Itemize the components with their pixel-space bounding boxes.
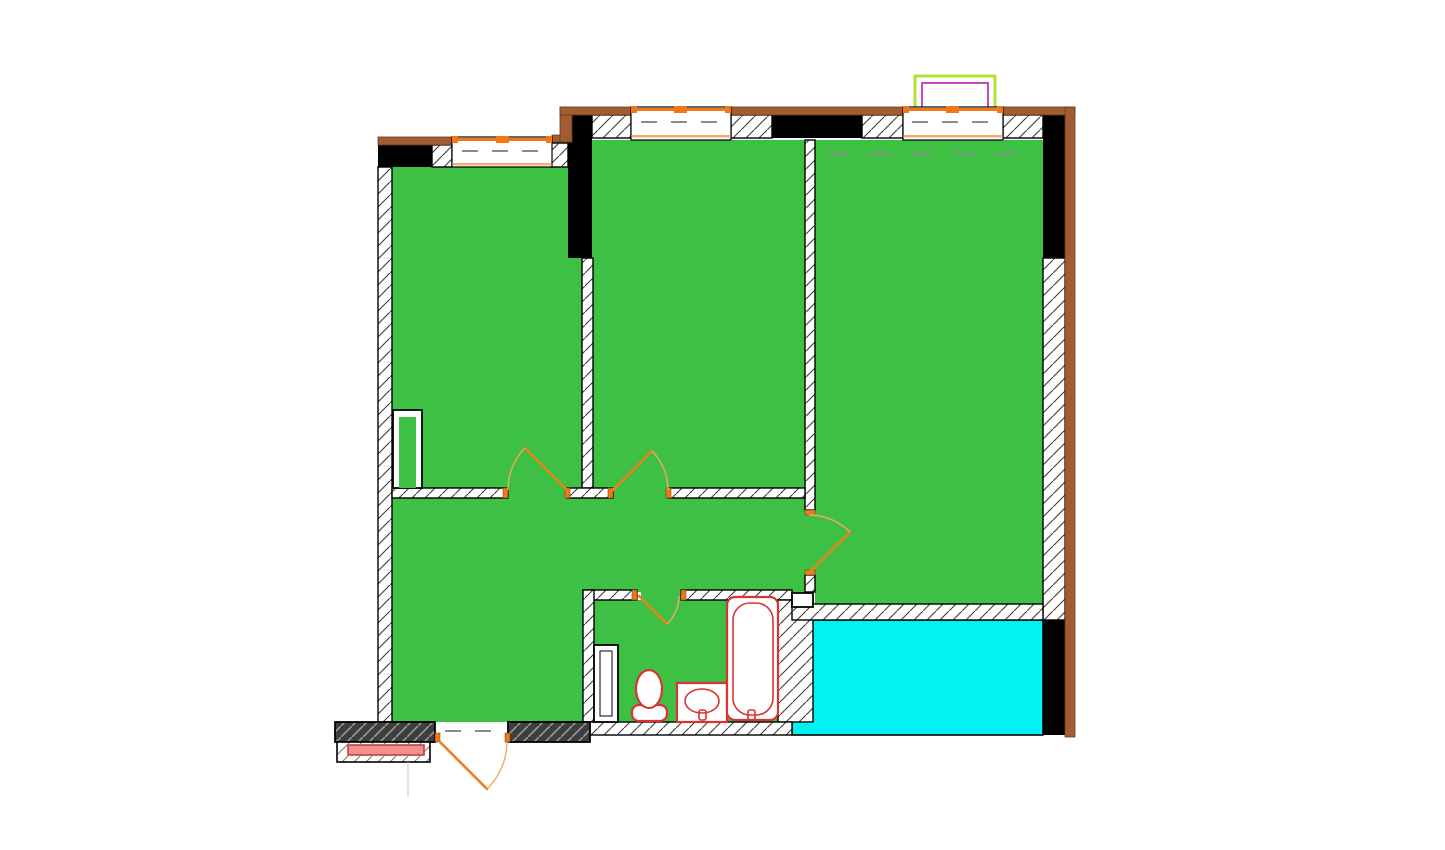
wall-top-piece-2 [550, 143, 568, 167]
window-1-mark-left [452, 136, 458, 143]
entry [335, 722, 590, 797]
wall-mid-horizontal-1 [392, 488, 508, 498]
door-4-jamb-left [632, 590, 637, 600]
window-3-inner-line [903, 135, 1003, 138]
window-box-inner [922, 83, 988, 109]
duct-bathroom-core [600, 651, 612, 716]
window-3-mark-right [997, 106, 1003, 113]
bathroom-wall-bottom [583, 722, 792, 735]
wall-top-piece-1 [432, 145, 452, 167]
door-3-jamb-top [805, 510, 815, 515]
window-1-mark-right [546, 136, 552, 143]
door-opening-4-floor [641, 590, 681, 600]
door-opening-1-floor [508, 488, 567, 498]
entry-door-leaf [440, 742, 487, 789]
wall-divider-left-middle [582, 258, 593, 488]
window-2-mark-right [725, 106, 731, 113]
balcony-wall-top [792, 604, 1043, 620]
wall-notch [792, 593, 813, 607]
window-top-middle [631, 106, 731, 140]
wall-right-exterior [1043, 258, 1065, 620]
toilet-bowl [636, 670, 662, 708]
door-4-jamb-right [681, 590, 686, 600]
floor-plan-drawing [0, 0, 1445, 850]
column-right-bottom [1043, 620, 1065, 735]
window-3-mark-center [946, 106, 959, 113]
entry-wall-left [335, 722, 435, 742]
entry-door-jamb-left [435, 733, 440, 742]
wall-top-piece-4 [731, 115, 772, 138]
entry-porch-step [348, 745, 424, 755]
column-right-top [1043, 115, 1065, 258]
window-2-mark-left [631, 106, 637, 113]
bathroom-wall-left [583, 590, 594, 722]
rooms [392, 140, 1043, 735]
wall-top-piece-5 [862, 115, 903, 138]
brown-cap-4 [1003, 107, 1075, 115]
bathtub [727, 597, 778, 720]
door-1-jamb-left [503, 488, 508, 498]
entry-wall-right [508, 722, 590, 742]
window-2-mark-center [674, 106, 687, 113]
entry-door-jamb-right [505, 733, 510, 742]
window-1-mark-center [496, 136, 509, 143]
brown-cap-1 [378, 137, 452, 145]
column-top-left [378, 145, 432, 167]
window-3-mark-left [903, 106, 909, 113]
wall-left-exterior [378, 167, 392, 722]
brown-wall-right [1065, 107, 1075, 737]
niche-left-room-core [399, 417, 416, 488]
wall-top-piece-3 [592, 115, 631, 138]
sink [677, 683, 727, 722]
bathtub-outer [727, 597, 778, 720]
floor-plan-page [0, 0, 1445, 850]
wall-mid-horizontal-3 [668, 488, 805, 498]
balcony-floor [792, 620, 1043, 735]
door-opening-2-floor [613, 488, 668, 498]
room-top-middle-floor [592, 140, 805, 488]
window-1-inner-line [452, 163, 552, 166]
window-top-right [903, 106, 1003, 140]
column-top-middle [772, 115, 862, 138]
door-opening-3-floor [805, 515, 815, 570]
window-top-left [452, 136, 552, 167]
wall-divider-middle-right [805, 140, 815, 510]
brown-cap-3 [731, 107, 903, 115]
entry-door-swing-arc [487, 742, 507, 789]
brown-cap-2 [560, 107, 633, 115]
wall-divider-stub [805, 575, 815, 592]
wall-top-piece-6 [1003, 115, 1043, 138]
exterior-window-box [915, 76, 995, 109]
window-2-inner-line [631, 135, 731, 138]
wall-mid-horizontal-2 [567, 488, 613, 498]
